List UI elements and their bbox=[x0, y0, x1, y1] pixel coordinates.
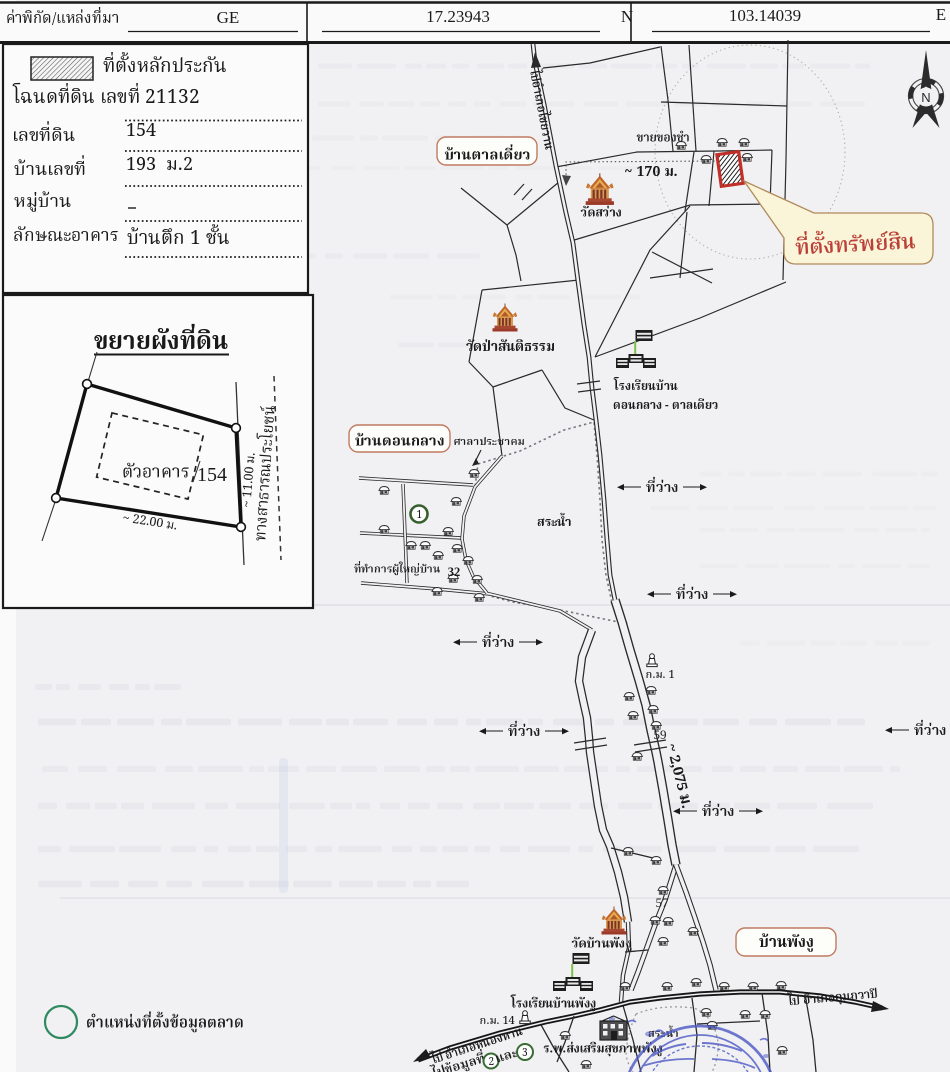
svg-text:N: N bbox=[921, 90, 930, 105]
svg-text:17.23943: 17.23943 bbox=[426, 7, 490, 26]
svg-text:N: N bbox=[621, 7, 633, 26]
svg-text:154: 154 bbox=[197, 464, 227, 486]
svg-text:GE: GE bbox=[217, 8, 240, 27]
svg-text:E: E bbox=[936, 5, 946, 24]
svg-text:103.14039: 103.14039 bbox=[729, 6, 801, 25]
svg-text:59: 59 bbox=[654, 727, 667, 742]
svg-text:32: 32 bbox=[448, 565, 461, 579]
svg-text:57: 57 bbox=[656, 895, 670, 910]
